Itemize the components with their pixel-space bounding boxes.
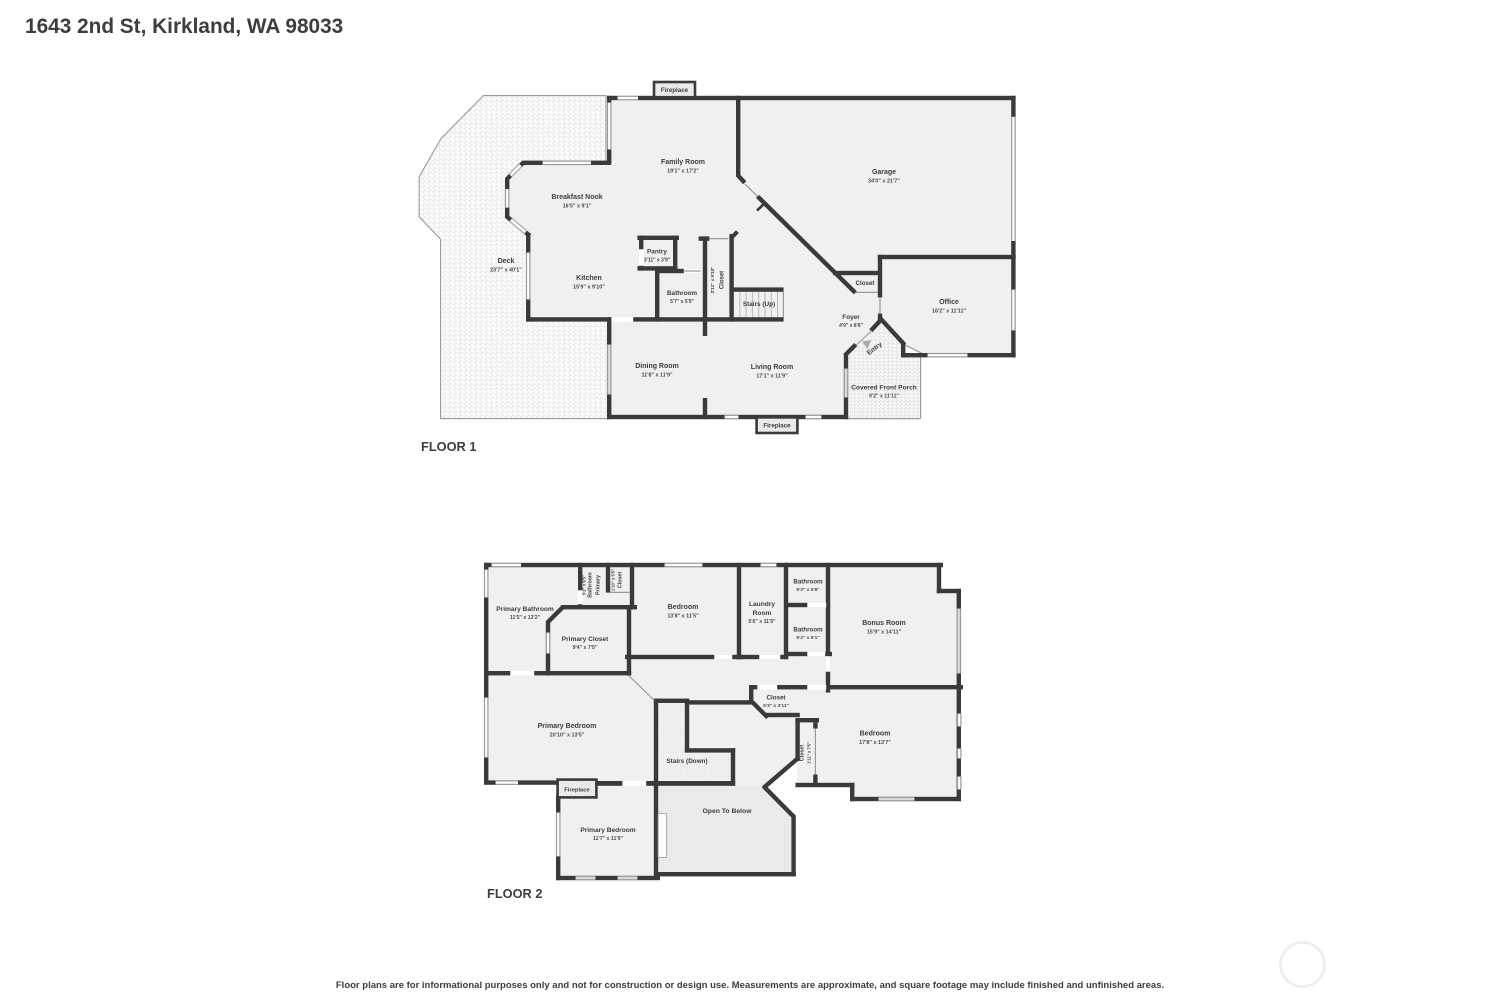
svg-text:Pantry: Pantry [647, 249, 667, 256]
svg-text:Office: Office [939, 299, 959, 306]
svg-text:Closet: Closet [618, 572, 624, 589]
svg-text:Closet: Closet [800, 745, 806, 762]
svg-text:Foyer: Foyer [842, 314, 860, 321]
svg-text:Bedroom: Bedroom [860, 731, 891, 738]
svg-text:Dining Room: Dining Room [635, 363, 679, 370]
svg-text:Floor plans are for informatio: Floor plans are for informational purpos… [336, 980, 1164, 991]
svg-text:Bathroom: Bathroom [793, 579, 823, 586]
svg-text:Closet: Closet [720, 271, 726, 289]
svg-text:FLOOR 1: FLOOR 1 [421, 439, 476, 454]
svg-text:Living Room: Living Room [751, 364, 793, 371]
svg-text:1'11" x 7'5": 1'11" x 7'5" [807, 742, 812, 764]
svg-text:5'7" x 5'9": 5'7" x 5'9" [670, 299, 694, 305]
svg-text:Room: Room [753, 610, 772, 617]
svg-text:Stairs (Down): Stairs (Down) [666, 758, 707, 765]
svg-text:Primary Bathroom: Primary Bathroom [496, 606, 554, 613]
svg-text:Bathroom: Bathroom [793, 627, 823, 634]
svg-text:15'9" x 14'11": 15'9" x 14'11" [867, 630, 902, 636]
svg-text:1643 2nd St, Kirkland, WA 9803: 1643 2nd St, Kirkland, WA 98033 [25, 15, 343, 38]
svg-text:Fireplace: Fireplace [763, 423, 791, 430]
svg-text:5'6" x 11'5": 5'6" x 11'5" [748, 619, 776, 625]
svg-text:5'2" x 6'1": 5'2" x 6'1" [796, 635, 819, 641]
svg-text:4'9" x 8'6": 4'9" x 8'6" [839, 323, 863, 329]
svg-text:19'1" x 17'2": 19'1" x 17'2" [667, 169, 699, 175]
svg-text:5'2" x 9'5": 5'2" x 9'5" [582, 575, 587, 595]
svg-text:Bedroom: Bedroom [668, 604, 699, 611]
svg-text:Primary: Primary [596, 575, 602, 595]
svg-text:16'2" x 11'11": 16'2" x 11'11" [932, 309, 967, 315]
svg-text:Primary Bedroom: Primary Bedroom [580, 827, 635, 834]
svg-text:17'8" x 13'7": 17'8" x 13'7" [859, 740, 891, 746]
svg-text:Primary Closet: Primary Closet [562, 636, 609, 643]
svg-text:34'0" x 21'7": 34'0" x 21'7" [868, 179, 900, 185]
svg-text:Primary Bedroom: Primary Bedroom [538, 723, 597, 730]
svg-text:16'5" x 9'1": 16'5" x 9'1" [563, 204, 592, 210]
svg-text:9'4" x 7'5": 9'4" x 7'5" [573, 645, 598, 651]
svg-text:Fireplace: Fireplace [564, 788, 590, 794]
svg-text:Garage: Garage [872, 169, 896, 176]
svg-text:Fireplace: Fireplace [661, 87, 689, 94]
svg-text:Deck: Deck [498, 258, 515, 265]
svg-text:Breakfast Nook: Breakfast Nook [551, 194, 602, 201]
svg-text:Bathroom: Bathroom [667, 290, 697, 297]
svg-text:3'11" x 3'9": 3'11" x 3'9" [644, 258, 671, 264]
svg-text:2'11" x 9'10": 2'11" x 9'10" [710, 267, 715, 294]
svg-text:5'3" x 5'8": 5'3" x 5'8" [796, 587, 819, 593]
svg-text:Covered Front Porch: Covered Front Porch [851, 385, 917, 392]
svg-text:Open To Below: Open To Below [703, 808, 753, 815]
svg-text:11'8" x 11'9": 11'8" x 11'9" [641, 373, 673, 379]
svg-text:1'10" x 5'5": 1'10" x 5'5" [611, 569, 616, 591]
svg-text:9'2" x 11'11": 9'2" x 11'11" [869, 394, 899, 400]
svg-text:13'8" x 11'5": 13'8" x 11'5" [667, 614, 699, 620]
svg-text:11'5" x 13'2": 11'5" x 13'2" [510, 615, 541, 621]
svg-text:Closet: Closet [767, 695, 786, 702]
svg-text:Bonus Room: Bonus Room [862, 620, 906, 627]
svg-text:15'9" x 9'10": 15'9" x 9'10" [573, 285, 605, 291]
svg-text:Bathroom: Bathroom [588, 572, 594, 598]
svg-text:23'7" x 40'1": 23'7" x 40'1" [490, 268, 522, 274]
svg-text:11'7" x 11'9": 11'7" x 11'9" [593, 836, 623, 842]
svg-text:5'3" x 3'11": 5'3" x 3'11" [763, 703, 789, 709]
svg-text:17'1" x 11'9": 17'1" x 11'9" [756, 374, 788, 380]
svg-text:FLOOR 2: FLOOR 2 [487, 886, 542, 901]
svg-text:Closet: Closet [856, 280, 875, 287]
svg-text:Kitchen: Kitchen [576, 275, 602, 282]
svg-text:Stairs (Up): Stairs (Up) [743, 301, 775, 308]
svg-text:Family Room: Family Room [661, 159, 705, 166]
svg-text:Laundry: Laundry [749, 601, 775, 608]
svg-text:20'10" x 13'5": 20'10" x 13'5" [550, 733, 585, 739]
